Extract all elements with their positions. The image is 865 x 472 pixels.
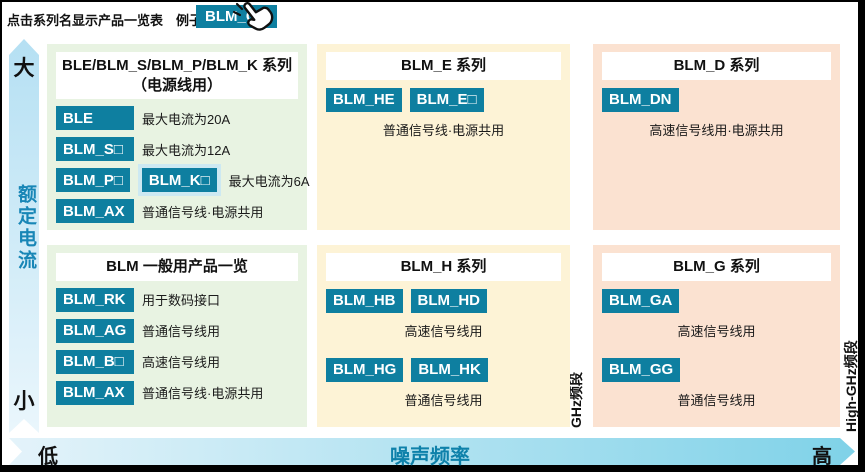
series-button-BLM_E[interactable]: BLM_E□	[410, 88, 484, 112]
series-button-BLM_GA[interactable]: BLM_GA	[602, 289, 679, 313]
panel-blm-general-series: BLM 一般用产品一览BLM_RK用于数码接口BLM_AG普通信号线用BLM_B…	[47, 245, 307, 427]
panel-row: BLM_B□高速信号线用	[56, 350, 298, 374]
panel-row: BLM_HBBLM_HD	[326, 289, 561, 313]
panel-title-line: BLM_E 系列	[328, 56, 559, 76]
series-button-BLM_AX[interactable]: BLM_AX	[56, 381, 134, 405]
high-ghz-band-label: High-GHz频段	[841, 340, 861, 432]
series-button-BLM_GG[interactable]: BLM_GG	[602, 358, 680, 382]
row-description: 普通信号线·电源共用	[142, 202, 263, 221]
series-button-BLM_HD[interactable]: BLM_HD	[411, 289, 488, 313]
panel-title: BLE/BLM_S/BLM_P/BLM_K 系列（电源线用）	[56, 52, 298, 99]
panel-row: BLE最大电流为20A	[56, 106, 298, 130]
series-button-BLM_HK[interactable]: BLM_HK	[411, 358, 488, 382]
y-axis-min-label: 小	[9, 385, 39, 415]
row-description: 用于数码接口	[142, 290, 220, 309]
panel-row: BLM_DN	[602, 88, 831, 112]
series-button-BLM_S[interactable]: BLM_S□	[56, 137, 134, 161]
panel-row: BLM_AG普通信号线用	[56, 319, 298, 343]
row-description: 普通信号线用	[326, 390, 561, 409]
diagram-canvas: 点击系列名显示产品一览表 例子） BLM_GA 大 额定电流 小 低 噪声频率 …	[2, 2, 858, 465]
row-description: 高速信号线用	[326, 321, 561, 340]
click-hand-icon	[230, 0, 280, 40]
panel-title-line: BLE/BLM_S/BLM_P/BLM_K 系列	[58, 56, 296, 76]
row-description: 普通信号线用	[142, 321, 220, 340]
panel-row: BLM_RK用于数码接口	[56, 288, 298, 312]
panel-title: BLM 一般用产品一览	[56, 253, 298, 281]
series-button-BLE[interactable]: BLE	[56, 106, 134, 130]
row-description: 普通信号线用	[602, 390, 831, 409]
series-button-BLM_HE[interactable]: BLM_HE	[326, 88, 402, 112]
series-button-BLM_K[interactable]: BLM_K□	[142, 168, 217, 192]
panel-title: BLM_D 系列	[602, 52, 831, 80]
row-description: 最大电流为6A	[229, 171, 310, 190]
panel-title-line: BLM 一般用产品一览	[58, 257, 296, 277]
panel-title: BLM_E 系列	[326, 52, 561, 80]
x-axis-high-label: 高	[812, 440, 832, 469]
series-button-BLM_B[interactable]: BLM_B□	[56, 350, 134, 374]
row-description: 高速信号线用	[602, 321, 831, 340]
panel-row: BLM_AX普通信号线·电源共用	[56, 199, 298, 223]
panel-row: BLM_GG	[602, 358, 831, 382]
row-description: 普通信号线·电源共用	[326, 120, 561, 139]
panel-row: BLM_HEBLM_E□	[326, 88, 561, 112]
panel-blm-d-series: BLM_D 系列BLM_DN高速信号线用·电源共用	[593, 44, 840, 230]
series-button-BLM_DN[interactable]: BLM_DN	[602, 88, 679, 112]
row-description: 普通信号线·电源共用	[142, 383, 263, 402]
series-button-BLM_AX[interactable]: BLM_AX	[56, 199, 134, 223]
panel-title-line: BLM_G 系列	[604, 257, 829, 277]
series-button-BLM_HB[interactable]: BLM_HB	[326, 289, 403, 313]
screenshot-frame: 点击系列名显示产品一览表 例子） BLM_GA 大 额定电流 小 低 噪声频率 …	[0, 0, 865, 472]
panel-row: BLM_GA	[602, 289, 831, 313]
panel-title: BLM_H 系列	[326, 253, 561, 281]
row-description: 高速信号线用·电源共用	[602, 120, 831, 139]
panel-power-line-series: BLE/BLM_S/BLM_P/BLM_K 系列（电源线用）BLE最大电流为20…	[47, 44, 307, 230]
panel-title-line: BLM_H 系列	[328, 257, 559, 277]
row-description: 高速信号线用	[142, 352, 220, 371]
row-description: 最大电流为12A	[142, 140, 230, 159]
row-description: 最大电流为20A	[142, 109, 230, 128]
panel-row: BLM_S□最大电流为12A	[56, 137, 298, 161]
panel-title-line: （电源线用）	[58, 76, 296, 96]
y-axis-title: 额定电流	[9, 184, 39, 272]
series-button-BLM_HG[interactable]: BLM_HG	[326, 358, 403, 382]
panel-blm-h-series: BLM_H 系列BLM_HBBLM_HD高速信号线用BLM_HGBLM_HK普通…	[317, 245, 570, 427]
series-button-BLM_RK[interactable]: BLM_RK	[56, 288, 134, 312]
panel-row: BLM_HGBLM_HK	[326, 358, 561, 382]
panel-blm-e-series: BLM_E 系列BLM_HEBLM_E□普通信号线·电源共用	[317, 44, 570, 230]
y-axis-max-label: 大	[9, 52, 39, 82]
series-button-BLM_P[interactable]: BLM_P□	[56, 168, 130, 192]
x-axis-title: 噪声频率	[2, 440, 858, 469]
panel-row: BLM_AX普通信号线·电源共用	[56, 381, 298, 405]
series-button-BLM_AG[interactable]: BLM_AG	[56, 319, 134, 343]
panel-title: BLM_G 系列	[602, 253, 831, 281]
header-note: 点击系列名显示产品一览表 例子）	[7, 10, 215, 29]
panel-title-line: BLM_D 系列	[604, 56, 829, 76]
panel-blm-g-series: BLM_G 系列BLM_GA高速信号线用BLM_GG普通信号线用	[593, 245, 840, 427]
panel-row: BLM_P□BLM_K□最大电流为6A	[56, 168, 298, 192]
